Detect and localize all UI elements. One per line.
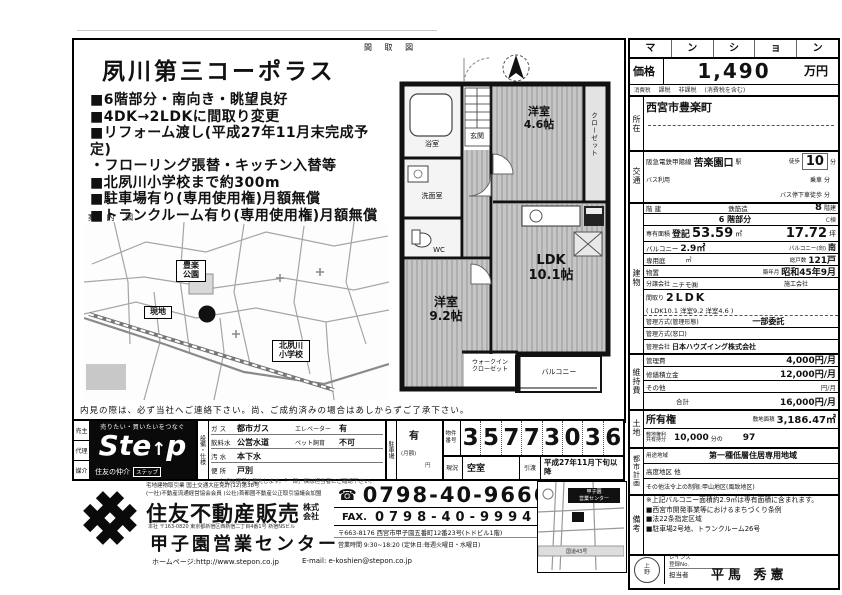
total-floors-unit: 階建 (824, 203, 836, 212)
site-area-label: 敷地面積 (753, 415, 775, 423)
structure: 鉄筋造 (663, 203, 813, 213)
price-row: 価格 1,490 万円 (630, 57, 838, 85)
equip-label-right: ペット飼育 (295, 438, 339, 447)
note-line: ■法22条指定区域 (646, 515, 836, 525)
feature-bullet: ■北夙川小学校まで約300m (90, 175, 390, 192)
approval-stamp: 上 野 (634, 557, 660, 583)
repair-fee-label: 修繕積立金 (646, 369, 679, 379)
price-unit: 万円 (804, 62, 838, 79)
city-group-label: 都市計画 (630, 447, 644, 494)
closet-label: クローゼット (589, 112, 596, 157)
office-map-road-label: 国道43号 (566, 548, 587, 555)
other-fee-value: 円/月 (668, 382, 837, 392)
property-number-digit: 3 (461, 421, 480, 455)
equipment-table: 設備・仕様 ガ ス 都市ガス エレベーター 有 飲料水 公営水道 ペット飼育 不… (196, 421, 387, 479)
mgmt-co-value: 日本ハウズイング株式会社 (672, 342, 756, 352)
balcony-label: バルコニー (526, 368, 592, 376)
rail-line: 阪急電鉄甲陽線 (646, 156, 692, 166)
seller-label: 分譲会社 (646, 279, 670, 288)
access-busstop-row: バス停下車徒歩 分 (644, 187, 838, 202)
layout-detail: ( LDK10.1 洋室9.2 洋室4.6 ) (646, 305, 733, 315)
agent-name: 平馬 秀憲 (711, 564, 788, 583)
site-area: 3,186.47㎡ (777, 411, 836, 426)
feature-bullets: ■6階部分・南向き・眺望良好 ■4DK→2LDKに間取り変更 ■リフォーム渡し(… (90, 92, 390, 224)
floors-row: 階 建 鉄筋造 8 階建 (644, 202, 838, 214)
office-map-label: 甲子園 営業センター (568, 488, 620, 503)
step-logo-arrow-icon: ↑ (151, 439, 166, 460)
access-block: 交通 阪急電鉄甲陽線 苦楽園口 駅 徒歩 10 分 バス利用 乗車 分 バス停下… (630, 150, 838, 204)
area-tsubo-unit: 坪 (829, 229, 836, 239)
status-row: 現況 空室 引渡 平成27年11月下旬以降 (442, 455, 623, 479)
land-right: 所有権 (646, 411, 676, 426)
notes-block: 備考 ※上記バルコニー面積約2.9㎡は専有面積に含まれます。 ■西宮市開発事業等… (630, 494, 838, 556)
property-number-digit: 3 (542, 421, 562, 455)
office-hours: 営業時間 9:30~18:20 (定休日:毎週火曜日・水曜日) (338, 540, 480, 549)
station-suffix: 駅 (736, 157, 742, 166)
floors-label: 階 建 (646, 203, 661, 213)
url-label: ホームページ: (152, 558, 196, 566)
property-number-label: 物件 番号 (442, 421, 461, 455)
phone-number: 0798-40-9666 (363, 483, 551, 507)
equip-value: 戸別 (237, 465, 295, 476)
zone-label: 用途地域 (646, 451, 668, 459)
status-label: 現況 (442, 455, 463, 479)
equipment-rows: ガ ス 都市ガス エレベーター 有 飲料水 公営水道 ペット飼育 不可 汚 水 … (209, 421, 385, 485)
built-label: 築年月 (763, 268, 780, 276)
feature-bullet: ■6階部分・南向き・眺望良好 (90, 92, 390, 109)
storage-label: 物置 (646, 267, 659, 277)
access-group-label: 交通 (630, 150, 644, 202)
map-label-site: 現地 (144, 306, 172, 319)
repair-fee-value: 12,000円/月 (681, 367, 837, 380)
divider-line (334, 507, 540, 508)
built-value: 昭和45年9月 (781, 265, 836, 278)
agent-box: レインズ 登録No. 担当者 平馬 秀憲 (664, 554, 838, 584)
fax-number: 0798-40-9994 (375, 510, 536, 525)
deal-type-option: 代理 (74, 441, 89, 461)
feature-bullet: ■4DK→2LDKに間取り変更 (90, 109, 390, 126)
land-group-label: 土地 (630, 409, 644, 447)
property-number-digit: 7 (501, 421, 521, 455)
notes-list: ※上記バルコニー面積約2.9㎡は専有面積に含まれます。 ■西宮市開発事業等におけ… (646, 496, 836, 534)
address-block: 所在 西宮市豊楽町 (630, 97, 838, 152)
equip-label: ガ ス (211, 423, 237, 433)
property-number-digit: 5 (480, 421, 500, 455)
feature-bullet: ■駐車場有り(専用使用権)月額無償 (90, 191, 390, 208)
equip-value-right: 不可 (339, 437, 355, 448)
tax-note: (消費税を含む) (705, 85, 746, 94)
parking-note-unit: 円 (425, 461, 431, 469)
step-badge: ステップ (133, 467, 161, 477)
layout-detail-row: ( LDK10.1 洋室9.2 洋室4.6 ) (644, 305, 838, 316)
equip-label: 汚 水 (211, 451, 237, 461)
phone-row: ☎ 0798-40-9666 (338, 483, 550, 507)
equip-value: 都市ガス (237, 423, 295, 434)
fees-group-label: 維持費 (630, 353, 644, 409)
parking-label: 駐車場 (385, 421, 397, 479)
building-block: 建物 階 建 鉄筋造 8 階建 6 階部分 C棟 専有面積 登記 53.59 ㎡… (630, 202, 838, 355)
share-label: 敷地権利 共有持分 (646, 433, 666, 444)
balcony-dir: 南 (828, 242, 836, 253)
email-line: E-mail: e-koshien@stepon.co.jp (302, 557, 412, 565)
equip-value: 公営水道 (237, 437, 295, 448)
area-registered-label: 登記 (672, 227, 690, 240)
total-fee-value: 16,000円/月 (691, 395, 836, 408)
handover-value: 平成27年11月下旬以降 (541, 458, 623, 476)
area-value: 53.59 (692, 226, 733, 241)
walk-minutes: 10 (802, 153, 828, 170)
address-dashed-line (648, 125, 834, 126)
room2-label: 洋室 9.2帖 (408, 296, 484, 324)
step-logotype: Ste↑p (89, 431, 196, 465)
property-flyer-box: 間 取 図 夙川第三コーポラス ■6階部分・南向き・眺望良好 ■4DK→2LDK… (72, 38, 626, 423)
step-logo-right: p (166, 429, 186, 462)
other-fee-row: その他 円/月 (644, 381, 838, 393)
agent-label: 担当者 (669, 569, 689, 579)
property-title: 夙川第三コーポラス (102, 52, 336, 86)
area-row: 専有面積 登記 53.59 ㎡ 17.72 坪 (644, 226, 838, 242)
land-block: 土地 所有権 敷地面積 3,186.47㎡ 敷地権利 共有持分 10,000 分… (630, 409, 838, 449)
equip-label-right: エレベーター (295, 424, 339, 433)
building-group-label: 建物 (630, 202, 644, 353)
neighborhood-map: 豊楽 公園 現地 北夙川 小学校 (84, 222, 389, 400)
zone-value: 第一種低層住居専用地域 (670, 450, 836, 461)
phone-icon: ☎ (338, 486, 357, 504)
other-restriction-row: その他法令上の制限:甲山地区(風致地区) (644, 479, 838, 494)
equipment-row: 飲料水 公営水道 ペット飼育 不可 (211, 436, 383, 449)
area-tsubo: 17.72 (786, 226, 827, 241)
ldk-name: LDK (536, 253, 565, 268)
step-brand-row: 住友の仲介 ステップ (89, 465, 196, 477)
parking-note: (月額) (401, 449, 416, 457)
seller-value: ニチモ㈱ (672, 279, 698, 289)
tax-note-row: 消費税 課税 非課税 (消費税を含む) (630, 84, 838, 97)
floor-at: 6 階部分 (646, 214, 824, 225)
address-value: 西宮市豊楽町 (644, 99, 838, 115)
balcony-dir-label: バルコニー(向) (789, 244, 826, 252)
mgmt-style-label: 管理方式(管理形態) (646, 317, 699, 326)
fax-row: FAX. 0798-40-9994 (342, 510, 536, 525)
price-label: 価格 (630, 57, 664, 84)
tax-label: 消費税 (634, 86, 651, 94)
mgmt-style-row: 管理方式(管理形態) 一部委託 (644, 316, 838, 328)
price-value: 1,490 (664, 59, 804, 83)
deal-type-option: 媒介 (74, 461, 89, 480)
entrance-label: 玄関 (463, 132, 491, 140)
mgmt-fee-value: 4,000円/月 (668, 353, 837, 366)
scan-artifact-line (77, 30, 437, 31)
status-value: 空室 (463, 461, 519, 474)
neighborhood-map-graphic (84, 222, 389, 400)
fees-block: 維持費 管理費 4,000円/月 修繕積立金 12,000円/月 その他 円/月… (630, 353, 838, 411)
wic-label: ウォークイン クローゼット (462, 360, 518, 374)
divider-line (334, 525, 540, 526)
company-hq-line: 本社 〒163-0820 東京都新宿区西新宿二丁目4番1号 新宿NSビル (148, 523, 295, 530)
wing: C棟 (826, 215, 836, 224)
floor-at-row: 6 階部分 C棟 (644, 214, 838, 226)
viewing-notice: 内見の際は、必ず当社へご連絡下さい。尚、ご成約済みの場合はあしからずご了承下さい… (80, 404, 610, 416)
type-letter: シ (714, 40, 756, 57)
room1-label: 洋室 4.6帖 (504, 106, 574, 131)
height-district-label: 高度地区 他 (646, 466, 681, 476)
room2-name: 洋室 (434, 295, 458, 309)
divider-line (334, 537, 540, 538)
room1-name: 洋室 (528, 105, 550, 118)
office-address: 〒663-8176 西宮市甲子園五番町12番23号(トドビル1階) (338, 528, 502, 537)
property-number-digit: 6 (603, 421, 623, 455)
step-brand-logo: 売りたい・買いたいをつなぐ Ste↑p 住友の仲介 ステップ (89, 421, 198, 479)
access-train-row: 阪急電鉄甲陽線 苦楽園口 駅 徒歩 10 分 (644, 150, 838, 172)
property-number-box: 物件 番号 3 5 7 7 3 0 3 6 現況 空室 引渡 平成27年11月下… (442, 421, 623, 479)
bus-ride-unit: 分 (824, 175, 830, 184)
type-letter: ン (797, 40, 838, 57)
listing-info-band: 売主 代理 媒介 売りたい・買いたいをつなぐ Ste↑p 住友の仲介 ステップ … (72, 419, 625, 481)
mgmt-style-value: 一部委託 (701, 316, 836, 327)
repair-fee-row: 修繕積立金 12,000円/月 (644, 367, 838, 381)
other-restriction: その他法令上の制限:甲山地区(風致地区) (646, 482, 755, 491)
share-denominator: 97 (743, 433, 756, 443)
email-label: E-mail: (302, 557, 326, 565)
notes-group-label: 備考 (630, 494, 644, 554)
office-name: 甲子園営業センター (150, 530, 339, 556)
mgmt-fee-row: 管理費 4,000円/月 (644, 353, 838, 367)
land-share-row: 敷地権利 共有持分 10,000 分の 97 (644, 429, 838, 447)
land-right-row: 所有権 敷地面積 3,186.47㎡ (644, 409, 838, 429)
address-group-label: 所在 (630, 97, 644, 150)
total-fee-label: 合計 (676, 396, 689, 406)
other-fee-label: その他 (646, 382, 666, 392)
feature-bullet: ■リフォーム渡し(平成27年11月末完成予定) (90, 125, 390, 158)
property-number-row: 物件 番号 3 5 7 7 3 0 3 6 (442, 421, 623, 457)
station-name: 苦楽園口 (694, 154, 734, 169)
tax-note: 課税 (659, 85, 671, 94)
ldk-label: LDK 10.1帖 (506, 254, 596, 284)
access-bus-row: バス利用 乗車 分 (644, 172, 838, 187)
mgmt-fee-label: 管理費 (646, 355, 666, 365)
balcony-area-label: バルコニー (646, 243, 678, 253)
walk-label: 徒歩 (789, 157, 800, 165)
ldk-size: 10.1帖 (528, 268, 573, 283)
layout-row: 間取り 2LDK (644, 290, 838, 305)
note-line: ■西宮市開発事業等におけるまちづくり条例 (646, 506, 836, 516)
city-planning-block: 都市計画 用途地域 第一種低層住居専用地域 高度地区 他 その他法令上の制限:甲… (630, 447, 838, 496)
builder-label: 施工会社 (784, 279, 808, 288)
property-number-digit: 3 (582, 421, 602, 455)
equipment-row: 汚 水 本下水 (211, 450, 383, 463)
bus-alight-label: バス停下車徒歩 (780, 190, 822, 199)
url-value: http://www.stepon.co.jp (196, 558, 279, 566)
built-row: 物置 築年月 昭和45年9月 (644, 266, 838, 278)
step-logo-left: Ste (99, 429, 152, 462)
equipment-row: 便 所 戸別 (211, 464, 383, 476)
total-floors: 8 (815, 202, 822, 213)
garden-label: 専用庭 (646, 255, 666, 265)
parking-cell: 駐車場 有 (月額) 円 (385, 421, 444, 479)
handover-label: 引渡 (519, 455, 541, 479)
height-district-row: 高度地区 他 (644, 464, 838, 479)
zone-row: 用途地域 第一種低層住居専用地域 (644, 447, 838, 464)
property-detail-panel: マ ン シ ョ ン 価格 1,490 万円 消費税 課税 非課税 (消費税を含む… (628, 38, 840, 590)
mgmt-co-row: 管理会社 日本ハウズイング株式会社 (644, 340, 838, 353)
layout-value: 2LDK (666, 291, 706, 304)
bus-use-label: バス利用 (646, 175, 670, 184)
sumitomo-igeta-logo-icon (78, 486, 142, 550)
bus-ride-label: 乗車 (810, 175, 822, 184)
equip-value: 本下水 (237, 451, 295, 462)
tax-note: 非課税 (679, 85, 697, 94)
homepage-line: ホームページ:http://www.stepon.co.jp (152, 557, 279, 567)
equip-label: 便 所 (211, 465, 237, 475)
step-brand-text: 住友の仲介 (95, 467, 130, 477)
room2-size: 9.2帖 (429, 309, 462, 323)
washroom-label: 洗面室 (408, 192, 456, 200)
mgmt-window-row: 管理方式(窓口) (644, 328, 838, 340)
email-value: e-koshien@stepon.co.jp (329, 557, 412, 565)
floorplan: 洋室 4.6帖 クローゼット 浴室 洗面室 WC 玄関 洋室 9.2帖 LDK … (396, 54, 620, 404)
floorplan-figure-label: 間 取 図 (364, 42, 418, 53)
deal-type-option: 売主 (74, 421, 89, 441)
company-suffix: 株式 会社 (303, 504, 319, 522)
property-number-digit: 7 (521, 421, 541, 455)
real-estate-flyer-page: 間 取 図 夙川第三コーポラス ■6階部分・南向き・眺望良好 ■4DK→2LDK… (0, 0, 842, 595)
type-letter: ョ (755, 40, 797, 57)
feature-bullet: ・フローリング張替・キッチン入替等 (90, 158, 390, 175)
share-numerator: 10,000 (674, 433, 709, 443)
balcony-area: 2.9㎡ (680, 241, 705, 254)
total-fee-row: 合計 16,000円/月 (644, 393, 838, 409)
note-line: ■駐車場2号地、トランクルーム26号 (646, 525, 836, 535)
parking-value: 有 (409, 427, 419, 442)
equip-label: 飲料水 (211, 437, 237, 447)
area-unit: ㎡ (735, 229, 742, 239)
bus-alight-unit: 分 (824, 190, 830, 199)
mgmt-co-label: 管理会社 (646, 342, 670, 351)
equipment-header: 設備・仕様 (196, 421, 209, 479)
property-number-digit: 0 (562, 421, 582, 455)
type-letter: マ (630, 40, 672, 57)
area-label: 専有面積 (646, 229, 670, 238)
room1-size: 4.6帖 (524, 118, 555, 131)
seller-row: 分譲会社 ニチモ㈱ 施工会社 (644, 278, 838, 290)
map-label-school: 北夙川 小学校 (272, 340, 310, 362)
type-letter: ン (672, 40, 714, 57)
map-label-park: 豊楽 公園 (176, 260, 206, 282)
office-location-map: 甲子園 営業センター 国道43号 (537, 481, 627, 573)
panel-footer: 上 野 レインズ 登録No. 担当者 平馬 秀憲 (630, 554, 838, 584)
layout-label: 間取り (646, 293, 664, 302)
equipment-row: ガ ス 都市ガス エレベーター 有 (211, 422, 383, 435)
equip-value-right: 有 (339, 423, 347, 434)
units-label: 総戸数 (790, 256, 807, 264)
walk-min-unit: 分 (830, 157, 836, 166)
note-line: ※上記バルコニー面積約2.9㎡は専有面積に含まれます。 (646, 496, 836, 506)
fax-label: FAX. (342, 512, 367, 523)
share-mid: 分の (711, 434, 723, 443)
garden-unit: ㎡ (686, 255, 692, 264)
wc-label: WC (426, 246, 452, 254)
bath-label: 浴室 (414, 140, 450, 148)
mgmt-window-label: 管理方式(窓口) (646, 329, 687, 338)
